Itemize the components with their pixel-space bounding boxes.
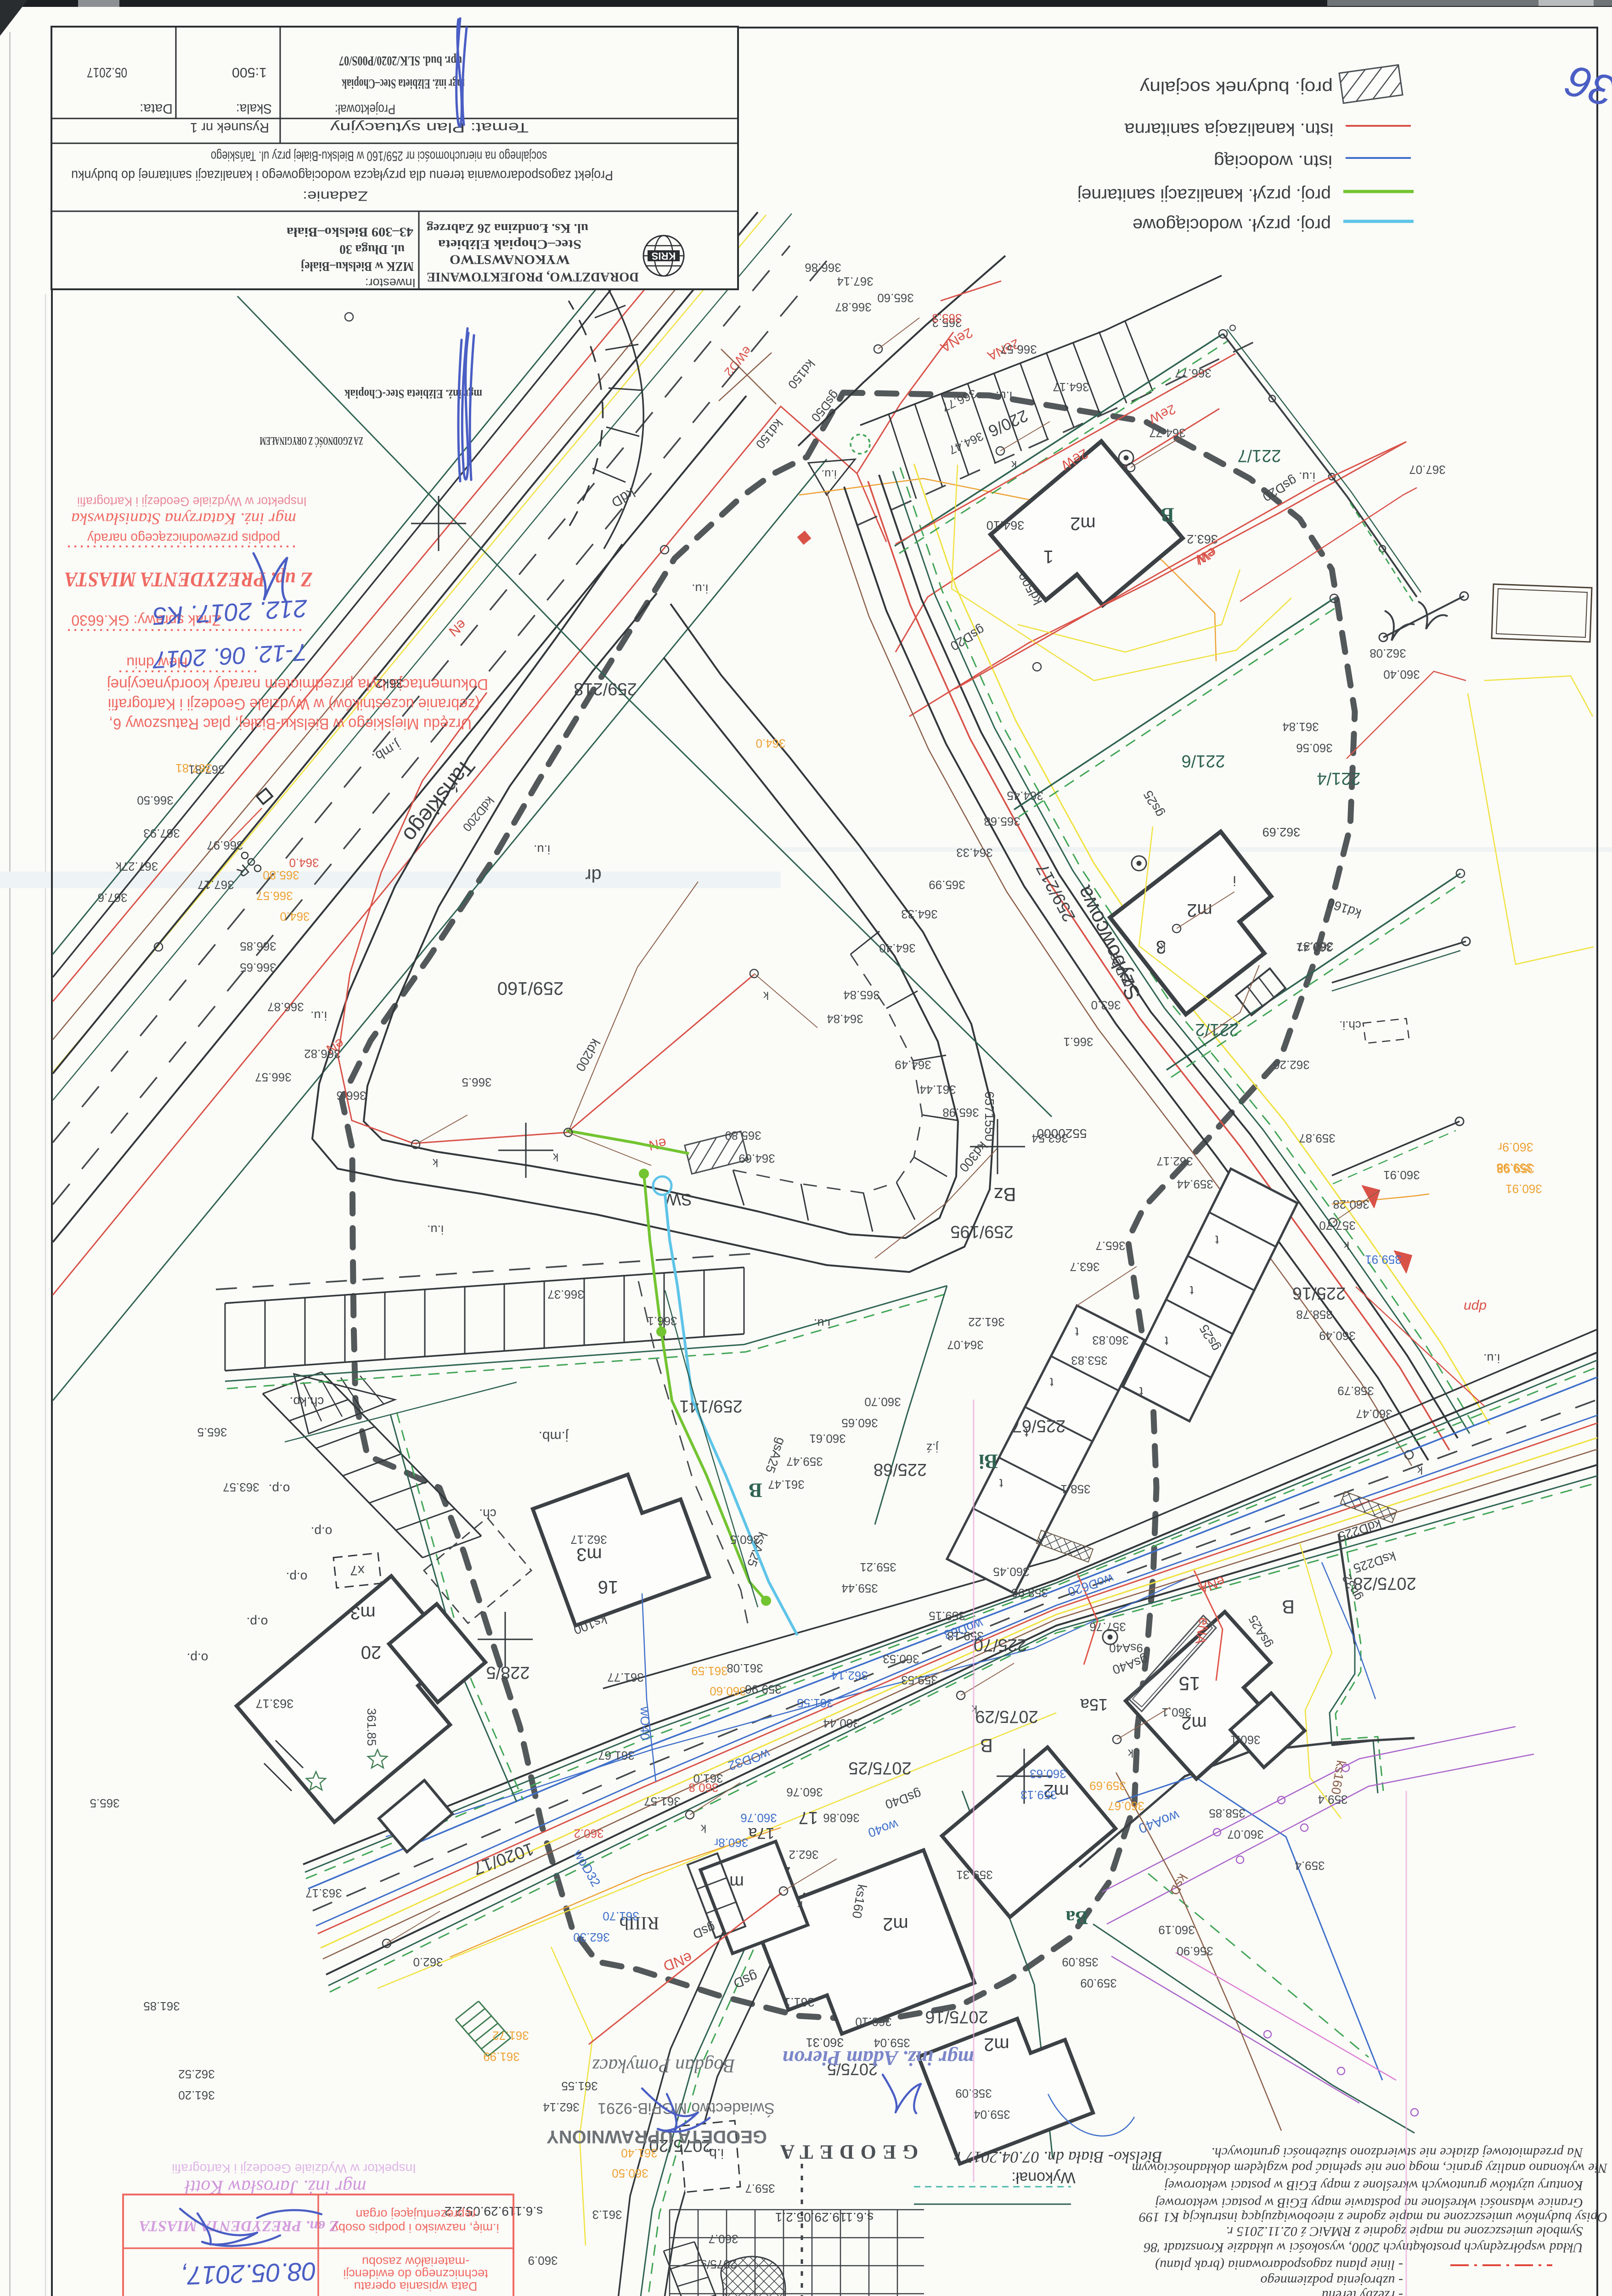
svg-text:- rzeźby terenu: - rzeźby terenu [1322, 2288, 1403, 2296]
svg-text:363.17: 363.17 [305, 1886, 342, 1900]
svg-text:eN: eN [648, 1135, 668, 1153]
svg-text:362.14: 362.14 [831, 1669, 868, 1683]
svg-text:36k2: 36k2 [376, 676, 404, 691]
svg-text:Rysunek nr 1: Rysunek nr 1 [190, 120, 269, 135]
svg-text:KRIS: KRIS [652, 250, 676, 262]
svg-text:361.3: 361.3 [592, 2208, 622, 2222]
svg-text:i.u.: i.u. [692, 582, 708, 596]
svg-text:reprezentującej organ: reprezentującej organ [355, 2207, 475, 2221]
svg-text:SW: SW [665, 1190, 692, 1209]
svg-text:364.0: 364.0 [289, 856, 319, 870]
svg-text:wO40: wO40 [638, 1706, 652, 1740]
svg-text:225/16: 225/16 [1292, 1283, 1346, 1303]
svg-text:technicznego do ewidencji: technicznego do ewidencji [343, 2267, 488, 2281]
svg-text:353.83: 353.83 [1071, 1354, 1108, 1367]
svg-text:i.u.: i.u. [310, 1009, 327, 1023]
svg-text:360.45: 360.45 [993, 1565, 1030, 1579]
svg-text:362.52: 362.52 [178, 2067, 215, 2081]
svg-text:mgr inż. Adam Pieron: mgr inż. Adam Pieron [782, 2047, 974, 2070]
svg-text:365.98: 365.98 [942, 1106, 979, 1120]
svg-text:364.0: 364.0 [280, 910, 310, 923]
svg-text:Inwestor:: Inwestor: [365, 276, 416, 290]
svg-text:366.37: 366.37 [547, 1288, 584, 1301]
svg-text:17a: 17a [749, 1824, 775, 1842]
svg-text:259/195: 259/195 [950, 1222, 1013, 1241]
svg-text:Projektował:: Projektował: [335, 101, 395, 117]
svg-text:360.8г: 360.8г [714, 1836, 749, 1850]
svg-text:365.99: 365.99 [929, 878, 965, 892]
svg-text:367.27k: 367.27k [115, 860, 158, 873]
svg-text:k: k [1343, 1239, 1349, 1251]
svg-text:360.40: 360.40 [1383, 668, 1420, 681]
svg-text:367.07: 367.07 [1409, 463, 1446, 477]
svg-text:259/218: 259/218 [574, 679, 637, 698]
svg-text:Nie wykonano analizy granic, m: Nie wykonano analizy granic, mogą one ni… [1132, 2161, 1608, 2176]
svg-text:361.77: 361.77 [607, 1671, 644, 1684]
svg-text:1: 1 [1043, 546, 1054, 567]
svg-text:k: k [552, 1151, 558, 1163]
svg-text:361.1: 361.1 [783, 1995, 815, 2009]
svg-text:362.17: 362.17 [1156, 1154, 1193, 1168]
svg-text:i.u.: i.u. [996, 389, 1012, 403]
svg-text:ch.: ch. [479, 1507, 496, 1521]
svg-text:Symbole umieszczone na mapie: Symbole umieszczone na mapie zgodnie z R… [1226, 2224, 1583, 2239]
svg-text:259/160: 259/160 [497, 978, 564, 998]
svg-text:364.69: 364.69 [738, 1152, 775, 1165]
svg-text:359.4: 359.4 [1318, 1793, 1347, 1806]
svg-text:366.87: 366.87 [835, 300, 872, 314]
svg-text:proj. budynek socjalny: proj. budynek socjalny [1140, 78, 1333, 97]
svg-text:- linie planu zagospodaro: - linie planu zagospodarowania (brak pla… [1155, 2257, 1403, 2273]
svg-text:362.17: 362.17 [570, 1533, 607, 1547]
svg-text:366.1: 366.1 [1063, 1035, 1093, 1049]
svg-text:dr: dr [585, 865, 602, 885]
svg-text:362.30: 362.30 [573, 1930, 610, 1944]
svg-text:k: k [1160, 940, 1166, 953]
svg-text:362.69: 362.69 [1263, 825, 1301, 839]
svg-text:o.p.: o.p. [311, 1525, 333, 1539]
svg-text:MZK w Bielsku–Białej: MZK w Bielsku–Białej [301, 259, 414, 273]
svg-text:m2: m2 [1070, 513, 1096, 534]
svg-text:m2: m2 [984, 2034, 1009, 2054]
svg-text:364.33: 364.33 [956, 846, 993, 860]
svg-text:361.85: 361.85 [365, 1708, 378, 1746]
svg-text:359.98: 359.98 [1496, 1161, 1533, 1175]
svg-text:359.91: 359.91 [1365, 1253, 1402, 1266]
svg-text:ch.i.: ch.i. [1339, 1019, 1361, 1032]
svg-text:357.76: 357.76 [1089, 1620, 1126, 1634]
svg-text:359.4: 359.4 [1295, 1859, 1325, 1873]
svg-text:GEODETA: GEODETA [774, 2141, 919, 2163]
svg-text:- uzbrojenia podziemnego: - uzbrojenia podziemnego [1260, 2273, 1403, 2288]
svg-text:Dokumentacja była przedmiotem: Dokumentacja była przedmiotem narady koo… [107, 675, 488, 693]
svg-text:ul. Ks. Łondzina 26 Zabrzeg: ul. Ks. Łondzina 26 Zabrzeg [427, 221, 588, 235]
svg-text:366.85: 366.85 [240, 940, 276, 953]
svg-text:358.85: 358.85 [1209, 1806, 1246, 1820]
svg-text:361.22: 361.22 [968, 1315, 1005, 1329]
svg-text:socjalnego na nieruchomości nr: socjalnego na nieruchomości nr 259/160 w… [211, 148, 547, 163]
svg-text:Bielsko- Biała dn. 07.04.2017: Bielsko- Biała dn. 07.04.2017 r. [952, 2148, 1162, 2167]
svg-text:365.89: 365.89 [725, 1129, 761, 1142]
svg-text:366.50: 366.50 [137, 793, 174, 807]
svg-text:i: i [1233, 873, 1236, 888]
svg-text:o.p.: o.p. [286, 1570, 308, 1584]
svg-text:364.07: 364.07 [947, 1338, 984, 1352]
svg-text:2075/16: 2075/16 [925, 2007, 988, 2026]
svg-text:istn. wodociąg: istn. wodociąg [1214, 152, 1332, 171]
svg-text:358.1: 358.1 [1060, 1482, 1090, 1496]
svg-text:359.31: 359.31 [956, 1868, 993, 1882]
svg-text:228/5: 228/5 [486, 1663, 530, 1682]
svg-text:366.6: 366.6 [336, 1089, 366, 1103]
svg-text:k: k [1417, 1464, 1423, 1476]
svg-text:1:500: 1:500 [232, 65, 267, 80]
svg-text:Układ współrzędnych prostokątn: Układ współrzędnych prostokątnych 2000, … [1144, 2240, 1583, 2255]
svg-text:360.19: 360.19 [1158, 1923, 1195, 1937]
svg-text:363.7: 363.7 [1070, 1260, 1099, 1274]
svg-text:t: t [999, 1476, 1003, 1491]
svg-text:15a: 15a [1080, 1695, 1108, 1714]
svg-text:359.04: 359.04 [974, 2108, 1010, 2122]
svg-text:m3: m3 [350, 1603, 376, 1623]
svg-text:i.u.: i.u. [427, 1223, 444, 1237]
svg-text:366.97: 366.97 [207, 838, 243, 852]
svg-text:366.87: 366.87 [267, 1000, 304, 1014]
svg-text:upr. bud. SLK/2020/P00S/07: upr. bud. SLK/2020/P00S/07 [339, 53, 462, 68]
svg-text:359.53: 359.53 [901, 1673, 938, 1687]
svg-text:361.67: 361.67 [598, 1749, 635, 1762]
svg-text:360.60: 360.60 [710, 1684, 746, 1698]
svg-text:k: k [432, 1156, 438, 1169]
svg-text:359.44: 359.44 [841, 1581, 878, 1595]
svg-text:i.u.: i.u. [1483, 1351, 1500, 1365]
svg-text:mgr inż. Elżbieta Stec–Chopiak: mgr inż. Elżbieta Stec–Chopiak [342, 76, 465, 91]
svg-text:Ba: Ba [1065, 1907, 1088, 1928]
svg-text:364.0: 364.0 [755, 737, 785, 750]
svg-text:i.u.: i.u. [534, 843, 550, 856]
svg-text:221/4: 221/4 [1317, 769, 1360, 788]
svg-text:o.p.: o.p. [187, 1651, 209, 1665]
svg-text:Bi: Bi [979, 1450, 998, 1473]
svg-text:podpis przewodniczącego narady: podpis przewodniczącego narady [87, 530, 280, 546]
svg-text:362.26: 362.26 [1273, 1058, 1310, 1072]
svg-text:365.60: 365.60 [877, 291, 914, 305]
svg-text:Wykonał:: Wykonał: [1011, 2169, 1076, 2186]
svg-text:360.07: 360.07 [1227, 1828, 1264, 1841]
svg-text:361.47: 361.47 [768, 1478, 805, 1491]
svg-text:359.21: 359.21 [860, 1560, 896, 1574]
svg-text:360.9г: 360.9г [1498, 1140, 1533, 1154]
svg-text:359.44: 359.44 [1177, 1177, 1213, 1191]
svg-text:361.57: 361.57 [644, 1795, 681, 1808]
svg-text:358.96: 358.96 [1011, 1586, 1048, 1600]
svg-text:360.10: 360.10 [855, 2015, 892, 2029]
svg-text:225/67: 225/67 [1012, 1416, 1065, 1435]
svg-text:i.mię, nazwisko i podpis osoby: i.mię, nazwisko i podpis osoby [332, 2221, 499, 2235]
svg-text:365.5: 365.5 [90, 1796, 119, 1810]
svg-text:359.87: 359.87 [1299, 1131, 1336, 1145]
svg-text:Opisy budynków umieszczone na: Opisy budynków umieszczone na mapie zgod… [1139, 2210, 1607, 2225]
svg-text:361.59: 361.59 [691, 1664, 728, 1678]
svg-text:2075/28: 2075/28 [1353, 1574, 1416, 1593]
svg-text:i.u.: i.u. [814, 1317, 830, 1330]
svg-text:9sA40: 9sA40 [1109, 1641, 1143, 1655]
svg-text:Kontury użytków gruntowych wkr: Kontury użytków gruntowych wkreślone z m… [1164, 2178, 1584, 2193]
svg-text:359.69: 359.69 [1089, 1779, 1126, 1793]
svg-text:359.96: 359.96 [745, 1683, 782, 1696]
svg-text:Granice własności wkreślone n: Granice własności wkreślone na podstawie… [1155, 2195, 1583, 2211]
svg-text:362.14: 362.14 [543, 2100, 580, 2114]
svg-text:366.57: 366.57 [1000, 343, 1037, 356]
svg-text:udp: udp [1464, 1298, 1487, 1313]
svg-text:360.8: 360.8 [688, 1781, 718, 1795]
svg-text:364.40: 364.40 [879, 941, 916, 955]
svg-text:m2: m2 [883, 1914, 908, 1934]
svg-text:GEODETA UPRAWNIONY: GEODETA UPRAWNIONY [547, 2127, 767, 2147]
svg-text:Inspektor w Wydziale Geodezji: Inspektor w Wydziale Geodezji i Kartogra… [77, 495, 307, 509]
svg-text:364.45: 364.45 [1007, 789, 1043, 803]
svg-text:360.91: 360.91 [1383, 1168, 1420, 1182]
svg-text:2075/29: 2075/29 [975, 1707, 1038, 1726]
svg-text:360.44: 360.44 [823, 1716, 860, 1730]
svg-text:DORADZTWO, PROJEKTOWANIE: DORADZTWO, PROJEKTOWANIE [427, 270, 639, 284]
svg-text:-materiałów zasobu: -materiałów zasobu [362, 2255, 469, 2268]
svg-text:358.79: 358.79 [1337, 1384, 1374, 1398]
svg-text:Stec–Chopiak Elżbieta: Stec–Chopiak Elżbieta [438, 237, 581, 251]
svg-text:t: t [1050, 1375, 1054, 1390]
svg-text:Z вп. PREZYDENTA MIASTA: Z вп. PREZYDENTA MIASTA [139, 2217, 339, 2234]
svg-text:Bz: Bz [993, 1184, 1016, 1205]
svg-text:i.u.: i.u. [1299, 470, 1315, 484]
svg-text:359.15: 359.15 [929, 1609, 965, 1623]
svg-text:359.7: 359.7 [745, 2182, 775, 2195]
svg-text:17: 17 [799, 1808, 818, 1827]
svg-text:ZA ZGODNOŚĆ Z ORYGINAŁEM: ZA ZGODNOŚĆ Z ORYGINAŁEM [260, 434, 363, 447]
svg-text:361.85: 361.85 [143, 1999, 180, 2013]
svg-text:t: t [1190, 1283, 1194, 1298]
svg-text:364.33: 364.33 [901, 907, 938, 921]
svg-text:360.1: 360.1 [1161, 1705, 1191, 1719]
svg-text:362.0: 362.0 [413, 1955, 443, 1969]
svg-text:364.49: 364.49 [895, 1058, 931, 1072]
svg-text:B: B [1161, 504, 1174, 526]
svg-text:360.5: 360.5 [730, 1533, 760, 1547]
svg-text:221/6: 221/6 [1181, 751, 1225, 771]
svg-text:363.0: 363.0 [1091, 998, 1121, 1012]
svg-text:360.37: 360.37 [1297, 940, 1334, 953]
svg-text:361.99: 361.99 [483, 2050, 520, 2064]
svg-text:Z up. PREZYDENTA MIASTA: Z up. PREZYDENTA MIASTA [64, 568, 313, 591]
svg-text:359.47: 359.47 [786, 1455, 823, 1469]
svg-text:365.5: 365.5 [197, 1425, 227, 1439]
svg-text:362.2: 362.2 [789, 1848, 818, 1862]
svg-text:B: B [980, 1735, 993, 1756]
svg-text:(zebranie uczestników) w Wydzi: (zebranie uczestników) w Wydziale Geodez… [108, 695, 480, 713]
svg-text:360.91: 360.91 [1505, 1182, 1542, 1196]
svg-text:356.90: 356.90 [1177, 1944, 1213, 1958]
svg-text:361.08: 361.08 [727, 1661, 763, 1675]
svg-text:08.05.2017,: 08.05.2017, [180, 2257, 317, 2290]
svg-text:k: k [1127, 1747, 1133, 1759]
svg-text:360.83: 360.83 [1092, 1334, 1129, 1347]
svg-text:m3: m3 [576, 1544, 602, 1564]
svg-text:358.09: 358.09 [1062, 1955, 1099, 1969]
svg-text:x7: x7 [350, 1563, 365, 1578]
svg-text:361.72: 361.72 [492, 2029, 529, 2043]
svg-text:360.47: 360.47 [1356, 1407, 1392, 1421]
svg-text:j.ź: j.ź [926, 1441, 939, 1455]
svg-text:366.57: 366.57 [256, 889, 293, 903]
svg-text:m: m [729, 1872, 744, 1891]
svg-text:WYKONAWSTWO: WYKONAWSTWO [450, 252, 570, 266]
svg-text:k: k [797, 1898, 803, 1911]
svg-text:359.09: 359.09 [1080, 1976, 1117, 1990]
svg-text:360.28: 360.28 [1333, 1198, 1370, 1211]
svg-text:ul. Długa 30: ul. Długa 30 [339, 242, 405, 256]
svg-text:Temat: Plan sytuacyjny: Temat: Plan sytuacyjny [330, 120, 529, 135]
svg-text:360.86: 360.86 [823, 1811, 860, 1825]
svg-text:366.77: 366.77 [1175, 366, 1212, 380]
svg-text:358.78: 358.78 [1296, 1308, 1333, 1322]
svg-text:361.44: 361.44 [919, 1083, 956, 1097]
svg-text:364.10: 364.10 [986, 518, 1025, 532]
svg-text:361.55: 361.55 [561, 2079, 598, 2093]
svg-text:t: t [1139, 1384, 1143, 1399]
svg-text:Urzędu Miejskiego w Bielsku-Bi: Urzędu Miejskiego w Bielsku-Białej, plac… [109, 715, 472, 732]
svg-text:B: B [1282, 1596, 1295, 1618]
svg-text:m2: m2 [1187, 900, 1212, 920]
svg-text:367.14: 367.14 [837, 275, 874, 288]
svg-text:20: 20 [361, 1642, 382, 1662]
svg-text:2075/25: 2075/25 [848, 1758, 911, 1778]
svg-text:221/7: 221/7 [1237, 446, 1281, 465]
svg-text:361.40: 361.40 [621, 2146, 658, 2160]
svg-text:Data wpisania operatu: Data wpisania operatu [354, 2279, 478, 2293]
svg-text:367.17: 367.17 [197, 878, 234, 892]
svg-text:259/141: 259/141 [679, 1396, 742, 1416]
svg-text:360.67: 360.67 [1108, 1799, 1144, 1813]
svg-text:360.76: 360.76 [786, 1785, 823, 1799]
svg-text:365.84: 365.84 [843, 988, 880, 1002]
svg-text:t: t [1165, 1334, 1168, 1348]
svg-text:361.55: 361.55 [797, 1696, 834, 1710]
svg-text:363.17: 363.17 [256, 1697, 294, 1711]
svg-text:365.3: 365.3 [932, 311, 962, 325]
svg-text:proj. przył. wodociągowe: proj. przył. wodociągowe [1133, 215, 1331, 234]
svg-text:366.57: 366.57 [255, 1070, 292, 1084]
svg-text:364.17: 364.17 [1053, 380, 1089, 394]
svg-text:Bogdan Pomykacz: Bogdan Pomykacz [592, 2055, 735, 2076]
svg-text:o.p.: o.p. [269, 1482, 290, 1496]
svg-text:364.84: 364.84 [827, 1012, 863, 1026]
svg-text:s.6.119.29.05.2.1: s.6.119.29.05.2.1 [775, 2210, 874, 2224]
svg-text:365.7: 365.7 [1095, 1239, 1125, 1253]
svg-text:357.70: 357.70 [1319, 1219, 1356, 1232]
svg-text:360.2: 360.2 [574, 1827, 603, 1840]
svg-text:360.9: 360.9 [528, 2254, 558, 2268]
svg-text:360.53: 360.53 [883, 1652, 919, 1666]
svg-text:Świadectwo MGPiB-9291: Świadectwo MGPiB-9291 [597, 2099, 775, 2117]
svg-text:t: t [1215, 1233, 1219, 1247]
svg-text:B: B [749, 1479, 762, 1502]
svg-text:ch.kp.: ch.kp. [290, 1395, 324, 1409]
svg-text:359.13: 359.13 [1020, 1788, 1057, 1802]
svg-text:360.70: 360.70 [864, 1395, 901, 1409]
svg-text:Projekt zagospodarowania teren: Projekt zagospodarowania terenu dla przy… [71, 168, 613, 183]
svg-text:360.65: 360.65 [841, 1416, 878, 1430]
svg-text:Na przedmiotowej działce nie: Na przedmiotowej działce nie stwierdzono… [1211, 2145, 1584, 2160]
svg-text:359.18: 359.18 [947, 1629, 984, 1643]
svg-text:360.7: 360.7 [708, 2232, 738, 2246]
svg-text:363.57: 363.57 [223, 1480, 259, 1494]
svg-text:365.68: 365.68 [984, 815, 1020, 828]
svg-text:363.2: 363.2 [1187, 532, 1218, 546]
svg-text:367.93: 367.93 [143, 827, 180, 840]
svg-text:j.mb.: j.mb. [538, 1429, 569, 1444]
svg-text:t: t [1075, 1325, 1079, 1339]
svg-text:15: 15 [1179, 1673, 1201, 1694]
svg-text:360.76: 360.76 [740, 1811, 777, 1825]
svg-text:366.5: 366.5 [462, 1075, 491, 1089]
svg-text:361.84: 361.84 [1282, 720, 1319, 734]
svg-text:o.p.: o.p. [247, 1615, 268, 1629]
svg-text:i.u.: i.u. [821, 467, 836, 480]
svg-text:43–309 Bielsko–Biała: 43–309 Bielsko–Biała [287, 225, 413, 239]
svg-text:362.08: 362.08 [1370, 647, 1406, 660]
svg-text:363.54: 363.54 [1031, 1131, 1068, 1145]
svg-text:proj. przył. kanalizacji sanit: proj. przył. kanalizacji sanitarnej [1077, 185, 1331, 204]
svg-text:istn. kanalizacja sanitarna: istn. kanalizacja sanitarna [1124, 119, 1334, 139]
svg-text:k: k [763, 989, 769, 1002]
svg-text:mgr inż. Katarzyna Stanisławsk: mgr inż. Katarzyna Stanisławska [71, 510, 296, 528]
svg-text:366.82: 366.82 [304, 1047, 341, 1061]
svg-text:366.1: 366.1 [647, 1314, 677, 1328]
svg-text:361.70: 361.70 [603, 1909, 639, 1923]
svg-text:Data:: Data: [140, 101, 173, 116]
svg-text:367.81: 367.81 [175, 761, 212, 775]
svg-text:361.20: 361.20 [178, 2088, 215, 2102]
svg-text:366.86: 366.86 [805, 261, 841, 275]
svg-text:Zadanie:: Zadanie: [303, 188, 368, 203]
svg-text:Inspektor w Wydziale Geodezji: Inspektor w Wydziale Geodezji i Kartogra… [172, 2161, 416, 2176]
svg-text:366.65: 366.65 [240, 961, 276, 974]
svg-text:360.49: 360.49 [1319, 1329, 1356, 1343]
svg-text:360.61: 360.61 [809, 1432, 846, 1446]
svg-text:360.50: 360.50 [612, 2167, 648, 2180]
svg-text:360.63: 360.63 [1030, 1767, 1066, 1781]
svg-text:k: k [1011, 458, 1017, 471]
svg-text:360.56: 360.56 [1296, 741, 1333, 755]
svg-text:6571550: 6571550 [982, 1091, 997, 1141]
svg-text:360.1: 360.1 [1230, 1733, 1260, 1747]
svg-text:k: k [700, 1822, 706, 1835]
svg-text:225/68: 225/68 [874, 1460, 927, 1479]
svg-text:Skala:: Skala: [236, 101, 272, 116]
svg-text:16: 16 [598, 1577, 619, 1597]
svg-text:05.2017: 05.2017 [87, 65, 127, 80]
svg-text:367.6: 367.6 [97, 891, 127, 905]
svg-text:365.80: 365.80 [263, 868, 299, 882]
